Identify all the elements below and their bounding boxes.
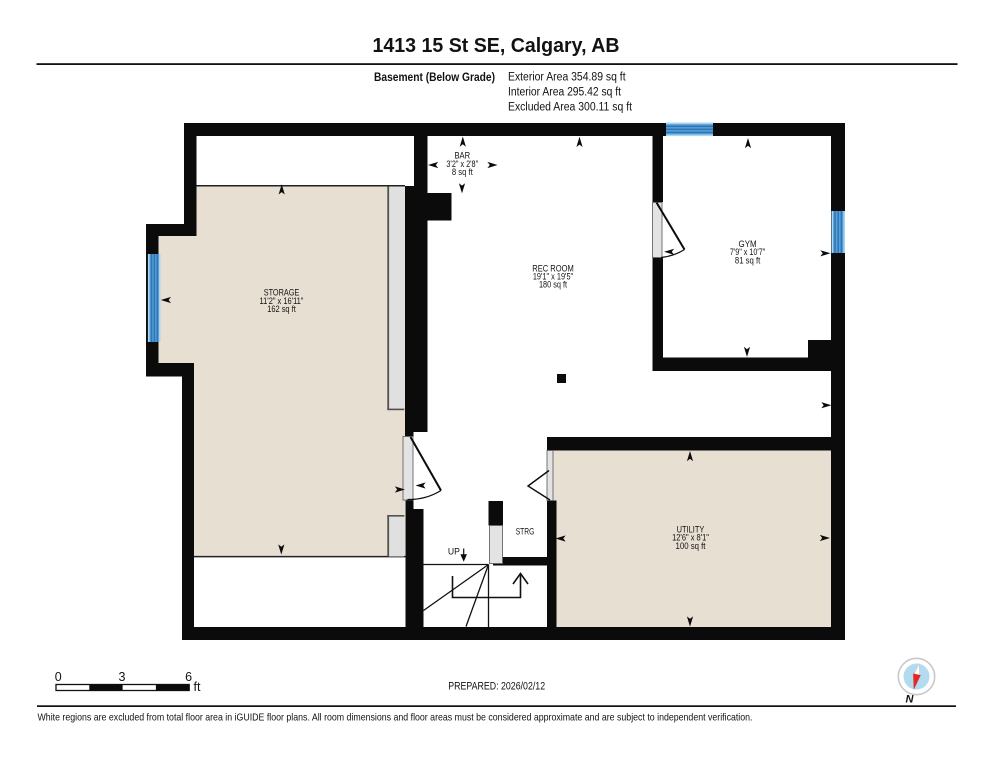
svg-text:1413 15 St SE, Calgary, AB: 1413 15 St SE, Calgary, AB (373, 34, 620, 57)
svg-text:White regions are excluded fro: White regions are excluded from total fl… (38, 712, 753, 723)
svg-text:162 sq ft: 162 sq ft (267, 304, 296, 314)
svg-text:PREPARED: 2026/02/12: PREPARED: 2026/02/12 (448, 680, 545, 692)
svg-text:180 sq ft: 180 sq ft (539, 280, 567, 290)
svg-text:UP: UP (448, 547, 460, 557)
svg-text:Interior Area 295.42 sq ft: Interior Area 295.42 sq ft (508, 87, 622, 99)
svg-text:Exterior Area 354.89 sq ft: Exterior Area 354.89 sq ft (508, 72, 626, 84)
svg-text:0: 0 (55, 670, 62, 684)
svg-text:6: 6 (185, 670, 192, 684)
svg-text:81 sq ft: 81 sq ft (735, 255, 761, 265)
svg-text:ft: ft (194, 680, 201, 694)
svg-text:STRG: STRG (516, 527, 535, 537)
svg-text:Excluded Area 300.11 sq ft: Excluded Area 300.11 sq ft (508, 102, 633, 114)
svg-text:N: N (906, 694, 915, 706)
svg-text:Basement (Below Grade): Basement (Below Grade) (374, 72, 495, 84)
svg-text:8 sq ft: 8 sq ft (452, 167, 473, 177)
svg-text:3: 3 (119, 670, 126, 684)
svg-text:100 sq ft: 100 sq ft (676, 541, 706, 551)
